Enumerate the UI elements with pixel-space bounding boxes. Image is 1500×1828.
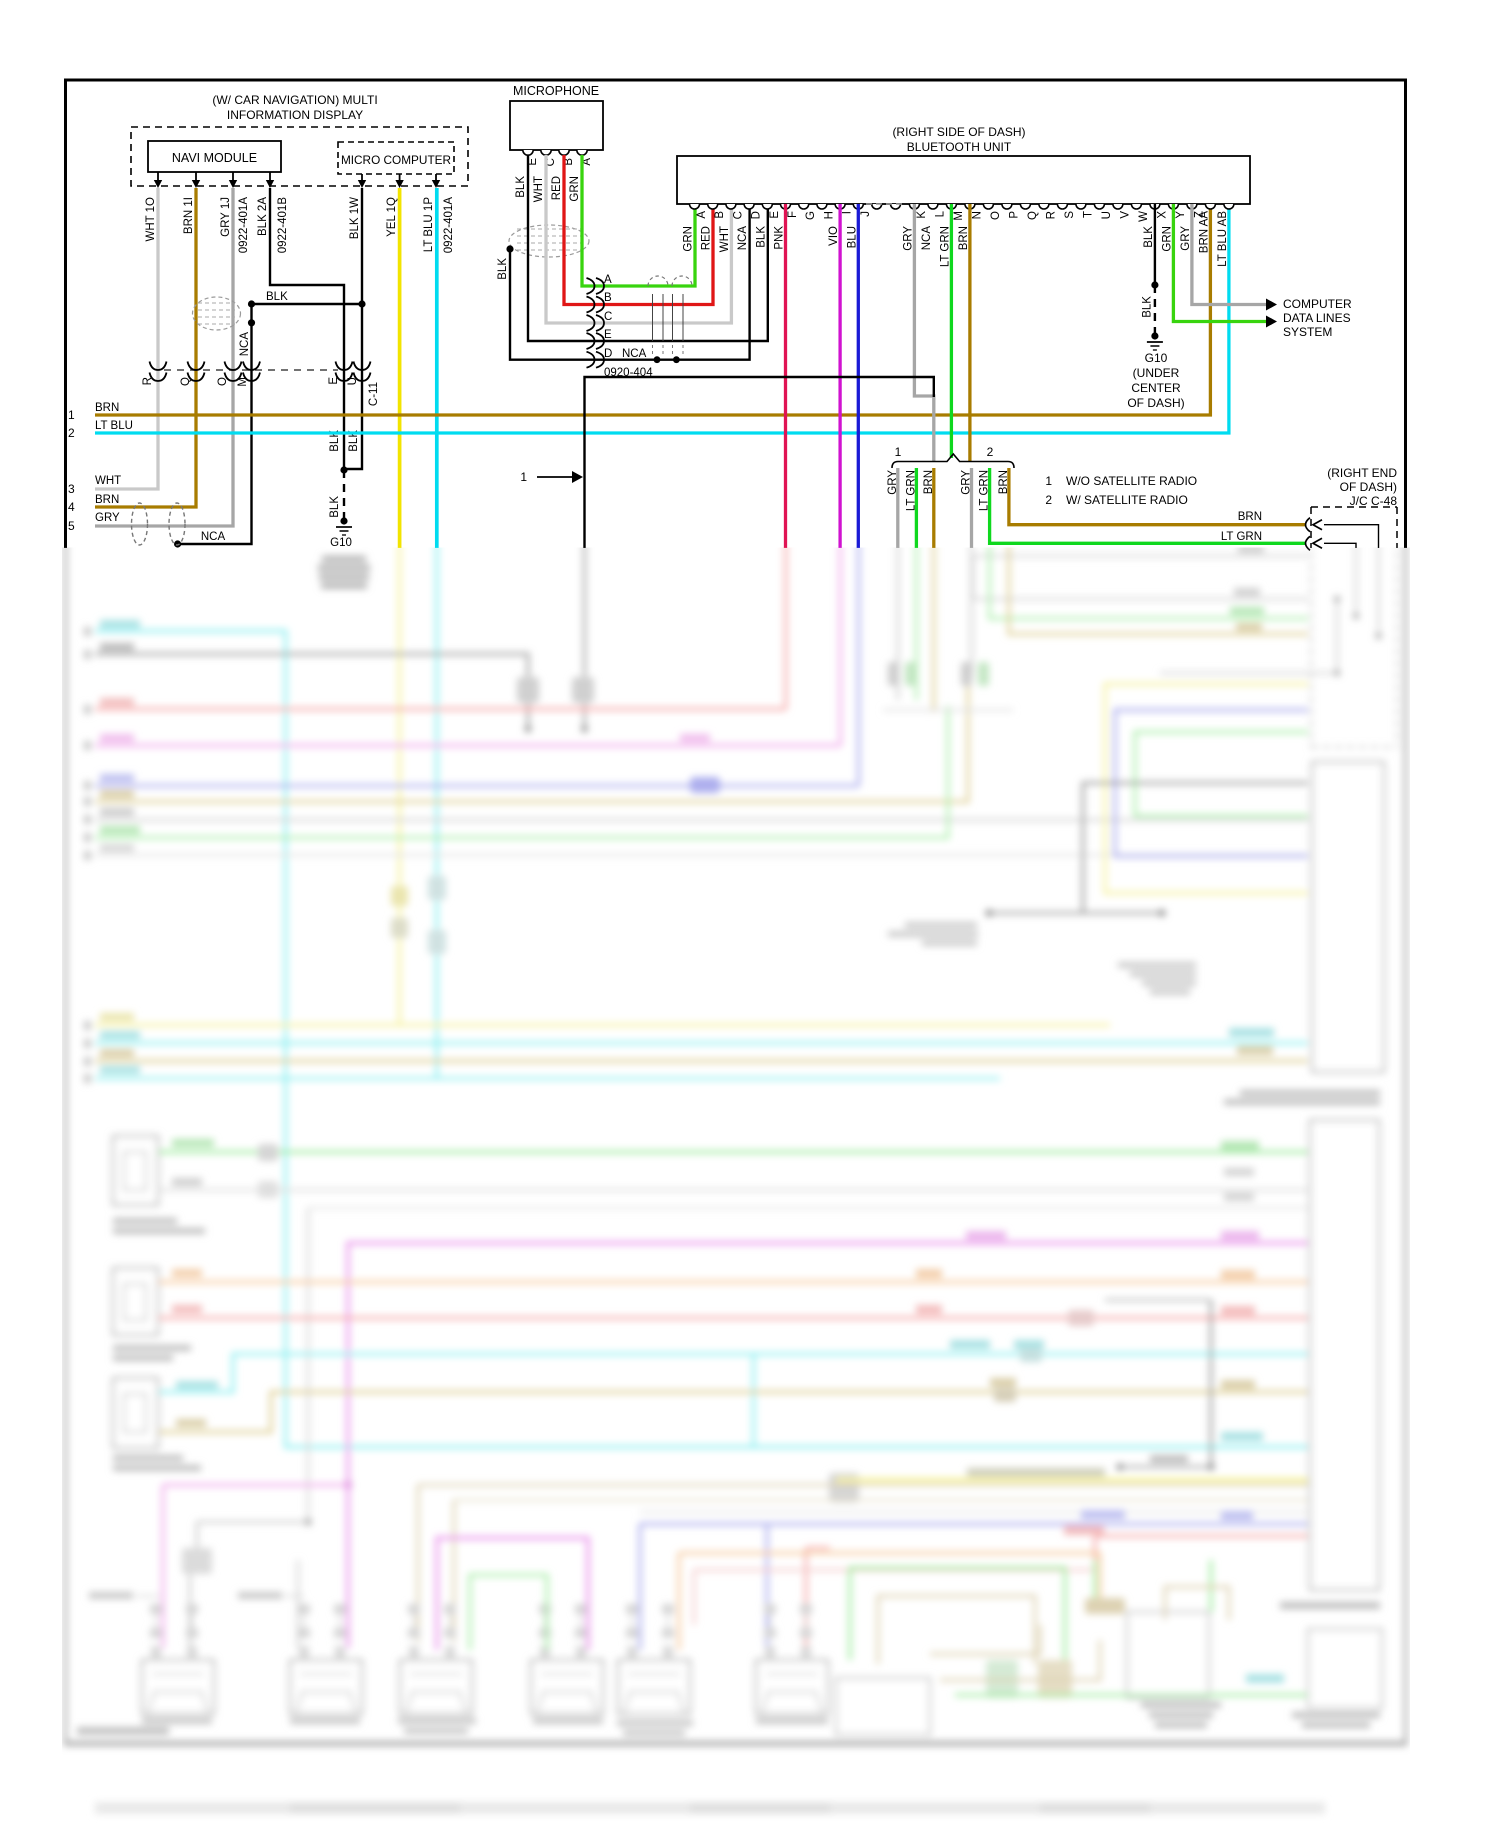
svg-text:C-11: C-11 bbox=[368, 382, 380, 406]
svg-text:M: M bbox=[237, 377, 249, 387]
svg-text:Q: Q bbox=[180, 377, 192, 386]
svg-text:GRY: GRY bbox=[1180, 226, 1192, 251]
svg-text:GRN: GRN bbox=[683, 226, 695, 252]
svg-text:N: N bbox=[971, 211, 983, 219]
svg-text:O: O bbox=[990, 211, 1002, 220]
svg-text:BRN 1I: BRN 1I bbox=[183, 197, 195, 234]
svg-text:WHT: WHT bbox=[719, 226, 731, 252]
svg-text:BLU: BLU bbox=[846, 226, 858, 248]
svg-text:1: 1 bbox=[68, 408, 75, 422]
svg-text:P: P bbox=[1008, 211, 1020, 219]
svg-text:W/ SATELLITE RADIO: W/ SATELLITE RADIO bbox=[1066, 493, 1188, 507]
svg-text:0922-401B: 0922-401B bbox=[277, 197, 289, 254]
svg-text:S: S bbox=[1064, 211, 1076, 219]
svg-text:1: 1 bbox=[895, 445, 902, 459]
svg-text:LT BLU AB: LT BLU AB bbox=[1217, 211, 1229, 267]
svg-text:PNK: PNK bbox=[774, 226, 786, 250]
svg-text:OF DASH): OF DASH) bbox=[1127, 396, 1184, 410]
svg-text:0922-401A: 0922-401A bbox=[238, 197, 250, 254]
svg-text:VIO: VIO bbox=[828, 226, 840, 246]
svg-text:3: 3 bbox=[68, 482, 75, 496]
svg-text:GRY: GRY bbox=[902, 226, 914, 251]
svg-text:1: 1 bbox=[520, 470, 527, 484]
svg-text:E: E bbox=[769, 211, 781, 219]
svg-text:2: 2 bbox=[987, 445, 994, 459]
svg-text:LT GRN: LT GRN bbox=[939, 226, 951, 267]
svg-text:E: E bbox=[604, 329, 612, 341]
svg-text:B: B bbox=[604, 292, 612, 304]
svg-text:GRY 1J: GRY 1J bbox=[220, 197, 232, 237]
svg-text:BRN: BRN bbox=[958, 226, 970, 250]
svg-text:G10: G10 bbox=[1145, 351, 1168, 365]
svg-text:WHT 1O: WHT 1O bbox=[145, 197, 157, 242]
svg-text:F: F bbox=[787, 211, 799, 218]
svg-text:M: M bbox=[953, 211, 965, 221]
svg-text:BLK 1W: BLK 1W bbox=[349, 197, 361, 239]
svg-text:C: C bbox=[604, 311, 612, 323]
svg-text:0922-401A: 0922-401A bbox=[443, 197, 455, 254]
svg-text:LT GRN: LT GRN bbox=[1221, 531, 1262, 543]
svg-text:BLK: BLK bbox=[755, 226, 767, 248]
svg-text:K: K bbox=[916, 211, 928, 219]
svg-text:BRN AA: BRN AA bbox=[1198, 211, 1210, 254]
svg-text:R: R bbox=[1045, 211, 1057, 219]
svg-text:(RIGHT SIDE OF DASH): (RIGHT SIDE OF DASH) bbox=[892, 125, 1025, 139]
svg-text:A: A bbox=[696, 211, 708, 219]
svg-text:O: O bbox=[217, 377, 229, 386]
svg-text:I: I bbox=[842, 211, 854, 214]
svg-text:G10: G10 bbox=[330, 537, 352, 549]
svg-text:GRN: GRN bbox=[569, 176, 581, 202]
svg-text:(RIGHT END: (RIGHT END bbox=[1327, 466, 1397, 480]
svg-text:A: A bbox=[604, 274, 612, 286]
svg-text:J: J bbox=[860, 211, 872, 217]
svg-text:BLK: BLK bbox=[497, 258, 509, 280]
svg-text:D: D bbox=[751, 211, 763, 219]
svg-text:Q: Q bbox=[1027, 211, 1039, 220]
svg-text:B: B bbox=[714, 211, 726, 219]
svg-text:SYSTEM: SYSTEM bbox=[1283, 325, 1332, 339]
svg-text:NCA: NCA bbox=[921, 226, 933, 251]
svg-text:J/C C-48: J/C C-48 bbox=[1350, 494, 1398, 508]
svg-text:W: W bbox=[1138, 211, 1150, 222]
svg-text:NCA: NCA bbox=[201, 531, 226, 543]
svg-text:DATA LINES: DATA LINES bbox=[1283, 311, 1351, 325]
svg-text:BLK: BLK bbox=[1143, 226, 1155, 248]
svg-text:Y: Y bbox=[1175, 211, 1187, 219]
svg-text:E: E bbox=[328, 377, 340, 385]
svg-text:2: 2 bbox=[1045, 493, 1052, 507]
svg-text:MICRO COMPUTER: MICRO COMPUTER bbox=[341, 153, 451, 167]
svg-text:D: D bbox=[604, 348, 612, 360]
svg-text:BRN: BRN bbox=[95, 402, 119, 414]
svg-text:U: U bbox=[347, 377, 359, 385]
svg-text:4: 4 bbox=[68, 500, 75, 514]
svg-text:(W/ CAR NAVIGATION) MULTI: (W/ CAR NAVIGATION) MULTI bbox=[212, 93, 377, 107]
svg-text:WHT: WHT bbox=[533, 176, 545, 202]
svg-text:WHT: WHT bbox=[95, 475, 121, 487]
svg-text:MICROPHONE: MICROPHONE bbox=[513, 84, 599, 98]
svg-text:W/O SATELLITE RADIO: W/O SATELLITE RADIO bbox=[1066, 474, 1197, 488]
svg-text:LT BLU: LT BLU bbox=[95, 420, 133, 432]
svg-text:R: R bbox=[142, 377, 154, 385]
svg-text:RED: RED bbox=[551, 176, 563, 200]
svg-text:BLK: BLK bbox=[266, 291, 288, 303]
svg-text:G: G bbox=[805, 211, 817, 220]
svg-text:INFORMATION DISPLAY: INFORMATION DISPLAY bbox=[227, 108, 363, 122]
svg-text:BLUETOOTH UNIT: BLUETOOTH UNIT bbox=[907, 140, 1012, 154]
svg-text:BLK 2A: BLK 2A bbox=[257, 197, 269, 236]
svg-text:BLK: BLK bbox=[329, 496, 341, 518]
svg-text:RED: RED bbox=[701, 226, 713, 250]
svg-text:BLK: BLK bbox=[1141, 296, 1153, 318]
svg-text:U: U bbox=[1101, 211, 1113, 219]
svg-text:BRN: BRN bbox=[95, 494, 119, 506]
svg-text:H: H bbox=[823, 211, 835, 219]
svg-text:BLK: BLK bbox=[515, 176, 527, 198]
svg-text:GRY: GRY bbox=[95, 512, 120, 524]
svg-text:X: X bbox=[1156, 211, 1168, 219]
svg-text:LT BLU 1P: LT BLU 1P bbox=[423, 197, 435, 253]
svg-text:NCA: NCA bbox=[622, 348, 647, 360]
svg-text:NCA: NCA bbox=[239, 332, 251, 357]
svg-text:1: 1 bbox=[1045, 474, 1052, 488]
svg-text:COMPUTER: COMPUTER bbox=[1283, 297, 1352, 311]
svg-text:V: V bbox=[1119, 211, 1131, 219]
svg-text:OF DASH): OF DASH) bbox=[1340, 480, 1397, 494]
svg-text:5: 5 bbox=[68, 519, 75, 533]
svg-text:T: T bbox=[1082, 211, 1094, 218]
svg-text:C: C bbox=[732, 211, 744, 219]
svg-text:(UNDER: (UNDER bbox=[1133, 366, 1180, 380]
svg-text:NCA: NCA bbox=[737, 226, 749, 251]
svg-text:GRN: GRN bbox=[1161, 226, 1173, 252]
svg-text:L: L bbox=[934, 210, 946, 217]
svg-text:YEL 1Q: YEL 1Q bbox=[386, 197, 398, 237]
svg-text:CENTER: CENTER bbox=[1131, 381, 1181, 395]
svg-text:BRN: BRN bbox=[1238, 511, 1262, 523]
svg-text:NAVI MODULE: NAVI MODULE bbox=[172, 151, 257, 165]
svg-text:2: 2 bbox=[68, 426, 75, 440]
